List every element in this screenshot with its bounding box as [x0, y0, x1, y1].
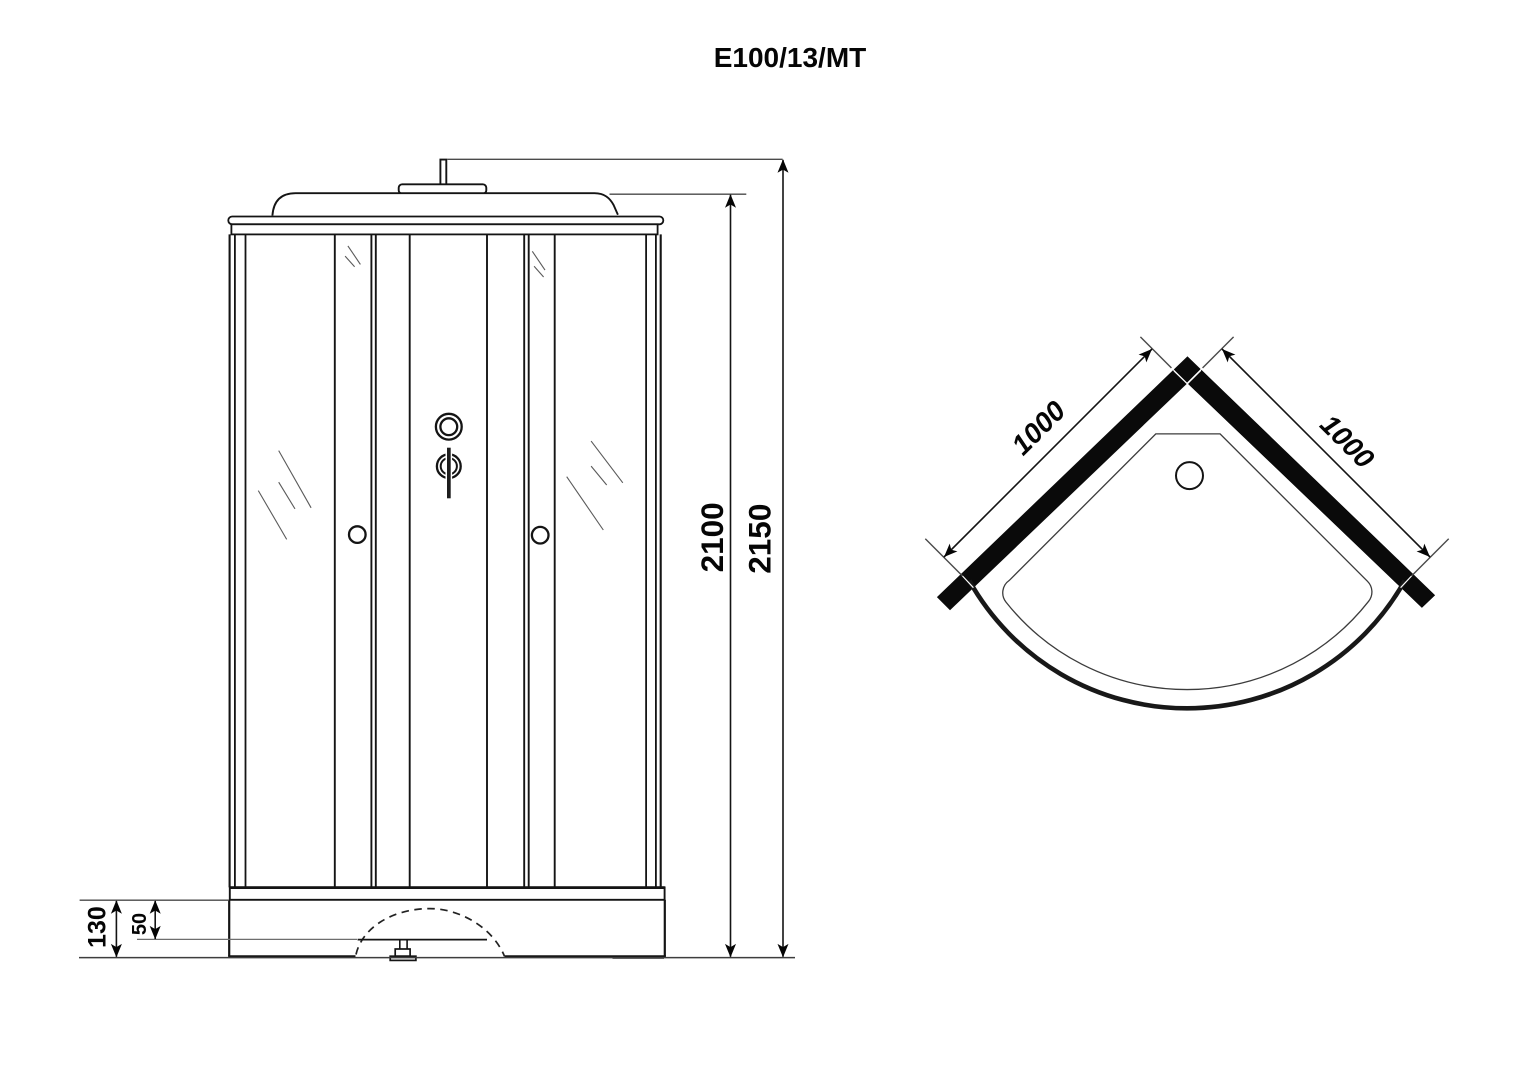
svg-text:2150: 2150: [742, 504, 778, 574]
svg-text:2100: 2100: [694, 502, 730, 572]
svg-text:130: 130: [84, 906, 112, 948]
svg-text:E100/13/MT: E100/13/MT: [714, 42, 867, 73]
svg-text:50: 50: [129, 913, 151, 935]
